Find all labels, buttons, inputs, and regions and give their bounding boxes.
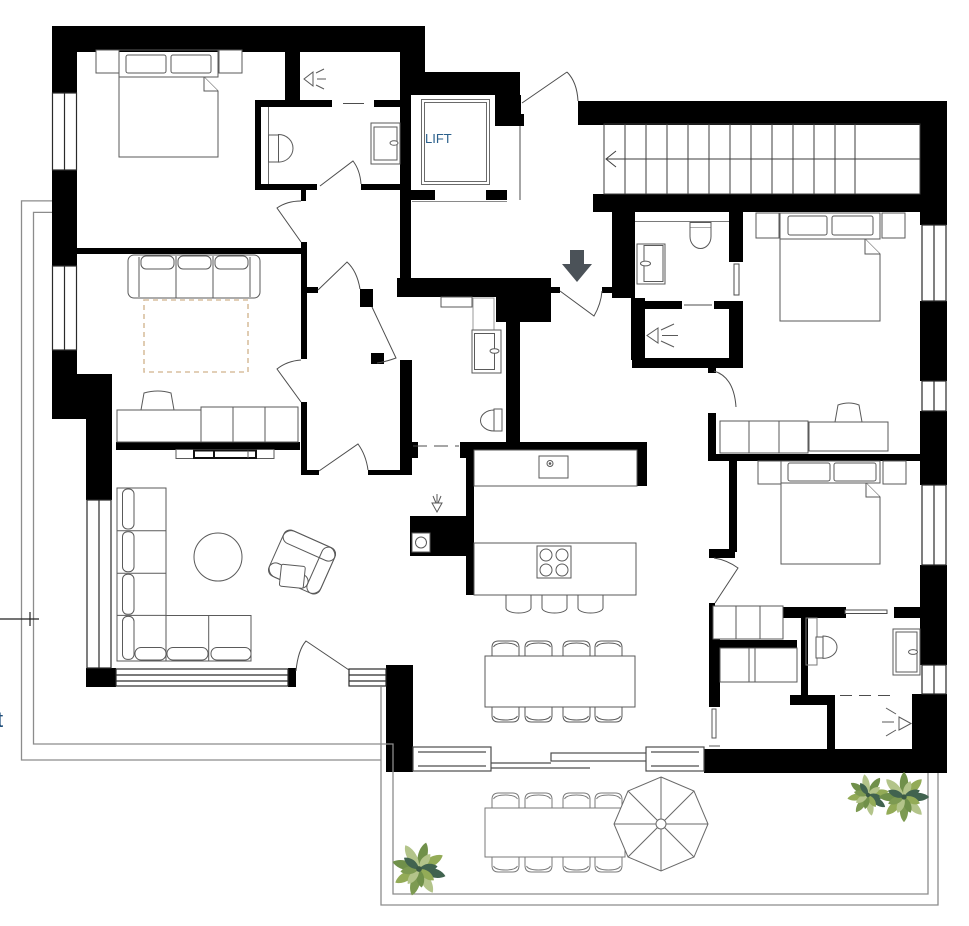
- svg-text:t: t: [0, 707, 3, 732]
- svg-text:LIFT: LIFT: [425, 131, 452, 146]
